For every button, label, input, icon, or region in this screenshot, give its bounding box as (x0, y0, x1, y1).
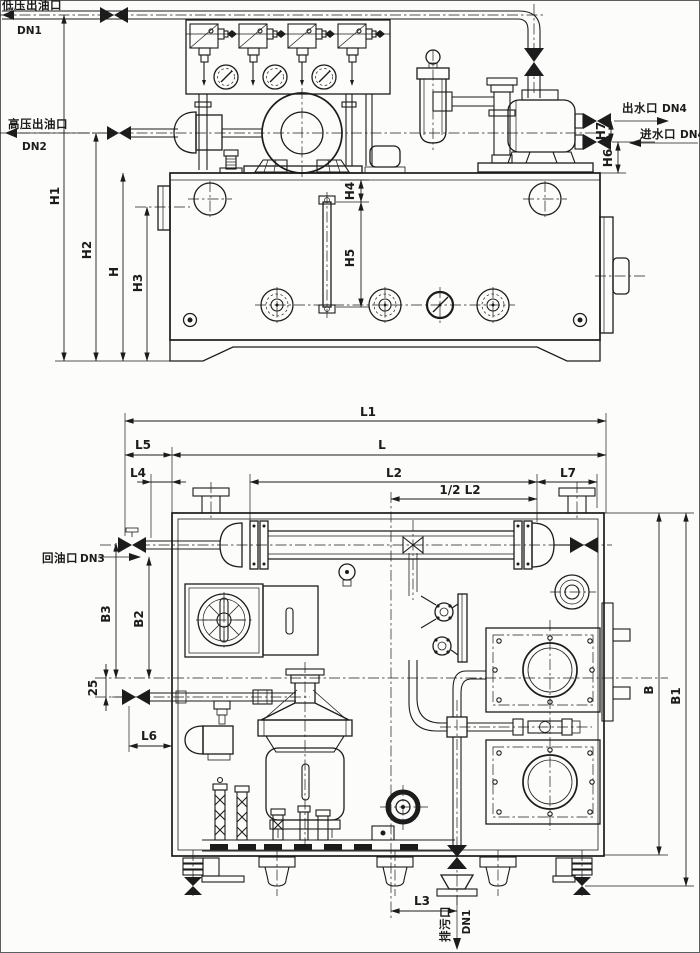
pressure-switch (190, 24, 228, 86)
motor-fan (185, 584, 318, 657)
dim-half-l2: 1/2 L2 (439, 483, 480, 497)
flow-arrow (657, 117, 669, 125)
port-name: 低压出油口 (1, 0, 62, 12)
dim-b: B (642, 685, 656, 694)
valve-block (370, 146, 400, 167)
plan-dimensions-left: B3 B2 25 L6 (86, 543, 172, 752)
dim-b3: B3 (99, 605, 113, 623)
dim-h: H (107, 267, 121, 277)
drain-valve-icon (447, 857, 467, 869)
pressure-gauge (263, 65, 287, 89)
lifting-eye (339, 564, 355, 586)
valve-icon (524, 62, 544, 76)
port-name: 进水口 (640, 127, 676, 141)
engineering-drawing-page: 低压出油口 DN1 高压出油口 DN2 (0, 0, 700, 953)
gear-pump-body (203, 726, 233, 754)
flow-arrow (453, 938, 461, 950)
dim-l6: L6 (141, 729, 157, 743)
dim-b2: B2 (132, 610, 146, 628)
plan-view: 回油口 DN3 (42, 405, 694, 950)
valve-stack (316, 810, 330, 840)
tank-skirt (170, 340, 600, 361)
gear-pump-dome (185, 726, 203, 754)
port-label-water-inlet: 进水口 DN4 (629, 127, 700, 147)
dim-l5: L5 (135, 438, 151, 452)
valve-block-base (365, 167, 405, 173)
auxiliary-pump (174, 112, 262, 173)
valve-icon (132, 537, 146, 553)
port-label-high-pressure-oil-outlet: 高压出油口 DN2 (5, 117, 90, 153)
port-size: DN2 (22, 141, 47, 153)
valve-icon (114, 7, 128, 23)
valve-icon (122, 689, 136, 705)
valve-icon (570, 537, 584, 553)
assembly-drawing: 低压出油口 DN1 高压出油口 DN2 (0, 0, 700, 953)
manhole-cover (486, 628, 600, 712)
dim-l4: L4 (130, 466, 146, 480)
instrument-panel (186, 20, 390, 94)
dim-l: L (378, 438, 386, 452)
pressure-switch (288, 24, 326, 86)
port-size: DN3 (80, 553, 105, 565)
plan-dimensions-right: B B1 (585, 513, 694, 886)
dim-offset-25: 25 (86, 680, 100, 697)
port-label-drain: 排污口 DN1 (438, 896, 473, 950)
dim-h6: H6 (601, 149, 615, 167)
port-label-oil-return: 回油口 DN3 (42, 551, 141, 565)
reducing-valve-station (409, 553, 467, 662)
port-label-water-outlet: 出水口 DN4 (614, 101, 687, 125)
port-size: DN4 (662, 103, 687, 115)
valve-icon (524, 48, 544, 62)
port-name: 回油口 (42, 551, 78, 565)
suction-pipe (112, 689, 296, 760)
water-cooler (478, 90, 611, 172)
port-name: 出水口 (622, 101, 658, 115)
dim-l1: L1 (360, 405, 376, 419)
oil-tank-front (158, 173, 629, 361)
dim-b1: B1 (669, 687, 683, 705)
pressure-gauge (312, 65, 336, 89)
plan-centerlines (95, 482, 668, 918)
drain-flange (477, 289, 509, 321)
drain-pipe-assembly (409, 660, 580, 896)
dim-h2: H2 (80, 241, 94, 259)
valve-icon (136, 689, 150, 705)
valve-icon (118, 537, 132, 553)
dim-h1: H1 (48, 187, 62, 205)
port-size: DN1 (461, 910, 473, 935)
dim-h5: H5 (343, 249, 357, 267)
flow-arrow (629, 139, 641, 147)
dim-l2: L2 (386, 466, 402, 480)
plan-dimensions-top: L1 L5 L L4 L2 L7 1/2 L2 (125, 405, 606, 538)
dim-l3: L3 (414, 894, 430, 908)
bolt (574, 314, 587, 327)
side-connector-plan (602, 603, 630, 721)
leader-arrow (129, 553, 141, 561)
pressure-switch (239, 24, 277, 86)
side-flange (158, 186, 170, 230)
dim-h4: H4 (343, 182, 357, 200)
front-view: 低压出油口 DN1 高压出油口 DN2 (0, 0, 700, 361)
manhole-cover (486, 740, 600, 824)
pressure-switch (338, 24, 376, 86)
valve-icon (100, 7, 114, 23)
bottom-rail (202, 840, 455, 851)
cooler-baseplate (478, 163, 593, 172)
leveling-jack (183, 858, 244, 895)
leveling-jack (553, 858, 592, 895)
valve-icon (584, 537, 598, 553)
valve-stack (298, 806, 310, 840)
port-size: DN1 (17, 25, 42, 37)
valve-stack (213, 778, 227, 841)
side-connector-flange (600, 217, 613, 333)
port-size: DN4 (680, 129, 700, 141)
pressure-gauge (214, 65, 238, 89)
dim-h3: H3 (131, 274, 145, 292)
dim-h7: H7 (594, 122, 608, 140)
motor-body (263, 586, 318, 655)
bolt (184, 314, 197, 327)
valve-stack (235, 786, 249, 840)
dim-l7: L7 (560, 466, 576, 480)
